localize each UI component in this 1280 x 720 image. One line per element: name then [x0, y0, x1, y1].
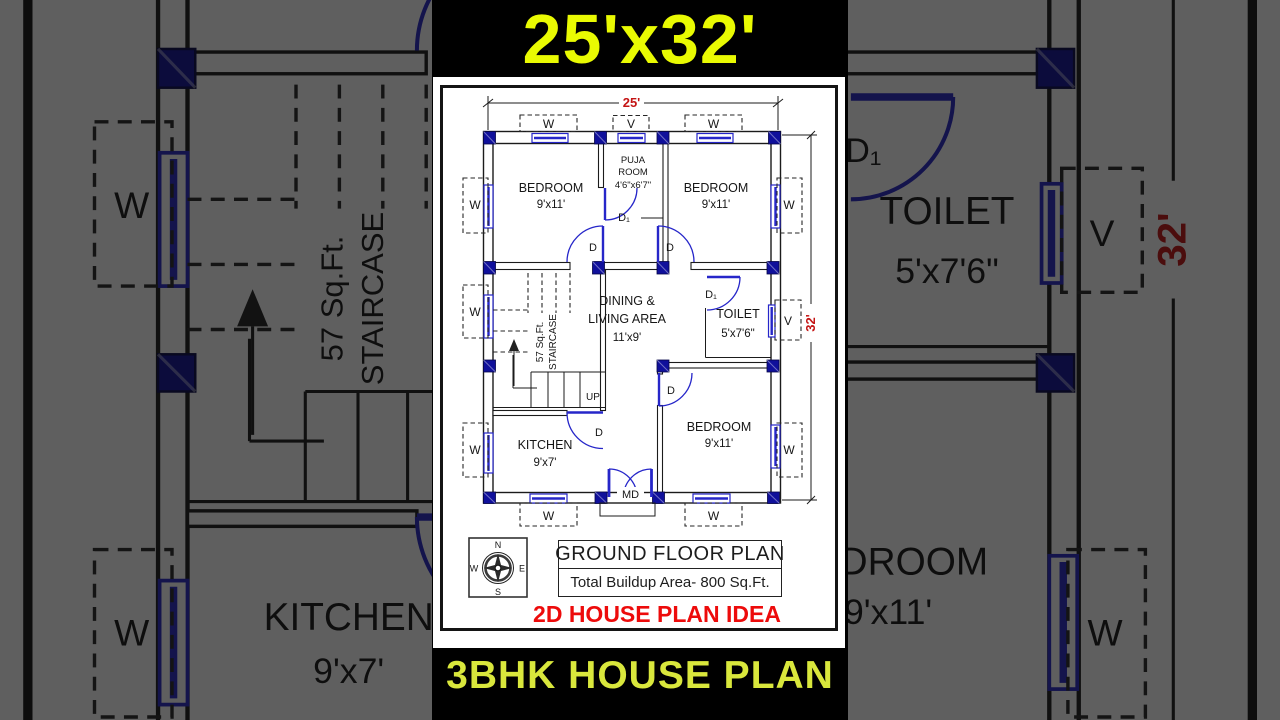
window-label: W — [543, 509, 555, 523]
staircase-area-label: 57 Sq.Ft. — [535, 322, 546, 363]
window-label: W — [708, 117, 720, 131]
room-labels: BEDROOM 9'x11' PUJA ROOM 4'6"x6'7" BEDRO… — [518, 155, 761, 469]
door-arc — [567, 226, 603, 262]
bedroom1-size: 9'x11' — [537, 199, 565, 211]
dining-size: 11'x9' — [613, 332, 641, 344]
kitchen-size: 9'x7' — [534, 457, 557, 469]
up-arrow-icon — [509, 339, 519, 351]
puja-name-1: PUJA — [621, 155, 646, 166]
toilet-name: TOILET — [716, 307, 760, 321]
bottom-title: 3BHK HOUSE PLAN — [446, 654, 834, 698]
bedroom2-size: 9'x11' — [702, 199, 730, 211]
buildup-area-text: Total Buildup Area- 800 Sq.Ft. — [559, 569, 781, 595]
entry-porch — [600, 503, 655, 516]
kitchen-name: KITCHEN — [518, 438, 573, 452]
title-block: GROUND FLOOR PLAN Total Buildup Area- 80… — [558, 540, 782, 597]
staircase-label: STAIRCASE — [548, 314, 559, 370]
video-column: 25'x32' 25' — [432, 0, 848, 720]
staircase: UP STAIRCASE 57 Sq.Ft. — [493, 273, 605, 408]
window-label: W — [469, 198, 481, 212]
door1-label: D₁ — [705, 289, 717, 301]
window-label: W — [543, 117, 555, 131]
window-label: W — [469, 443, 481, 457]
vent-label: V — [784, 314, 792, 328]
top-title-band: 25'x32' — [432, 0, 848, 77]
dim-height-label: 32' — [803, 314, 818, 332]
top-title: 25'x32' — [523, 0, 758, 79]
puja-size: 4'6"x6'7" — [615, 180, 651, 191]
puja-name-2: ROOM — [618, 167, 648, 178]
toilet-size: 5'x7'6" — [721, 328, 754, 340]
door-label: D — [666, 242, 674, 254]
plan-card: 25' 32' — [433, 77, 845, 648]
door-arc — [659, 373, 692, 406]
door-label: D — [589, 242, 597, 254]
door1-label: D₁ — [618, 212, 630, 224]
bedroom3-size: 9'x11' — [705, 438, 733, 450]
tagline: 2D HOUSE PLAN IDEA — [523, 601, 791, 628]
bedroom3-name: BEDROOM — [687, 420, 752, 434]
door-label: D — [667, 385, 675, 397]
compass-north-label: N — [495, 540, 502, 550]
bedroom2-name: BEDROOM — [684, 181, 749, 195]
window-label: W — [708, 509, 720, 523]
window-label: W — [469, 305, 481, 319]
plan-title: GROUND FLOOR PLAN — [559, 541, 781, 569]
bedroom1-name: BEDROOM — [519, 181, 584, 195]
window-label: W — [783, 198, 795, 212]
compass-west-label: W — [470, 564, 479, 574]
dim-width-label: 25' — [623, 95, 641, 110]
bottom-title-band: 3BHK HOUSE PLAN — [432, 648, 848, 720]
compass-rose: N S W E — [468, 537, 528, 598]
floor-plan-drawing: 25' 32' — [433, 88, 845, 533]
window-label: W — [783, 443, 795, 457]
video-frame: 25' 32' — [0, 0, 1280, 720]
main-door-label: MD — [622, 489, 639, 501]
compass-east-label: E — [519, 564, 525, 574]
vent-label: V — [627, 117, 635, 131]
up-label: UP — [586, 392, 600, 403]
door-label: D — [595, 427, 603, 439]
dining-name-1: DINING & — [599, 294, 655, 308]
dining-name-2: LIVING AREA — [588, 312, 666, 326]
compass-south-label: S — [495, 587, 501, 597]
